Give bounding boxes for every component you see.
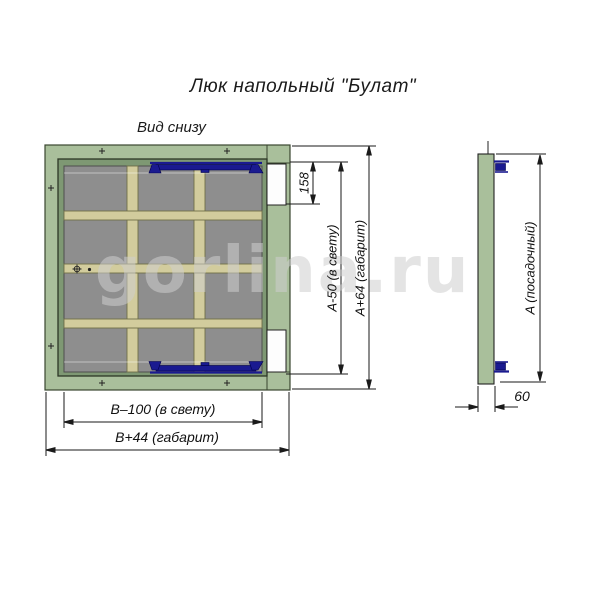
dim-label-recess-height: 158 — [298, 172, 311, 194]
dim-label-clear-height: A-50 (в свету) — [326, 224, 339, 311]
dim-label-thickness: 60 — [514, 389, 530, 403]
rib-horizontal — [64, 264, 262, 273]
dim-label-overall-height: A+64 (габарит) — [354, 220, 367, 316]
latch-recess-bottom — [267, 330, 286, 372]
rib-horizontal — [64, 211, 262, 220]
dim-label-seat-height: A (посадочный) — [524, 221, 537, 314]
side-frame-bar — [478, 154, 494, 384]
rib-horizontal — [64, 319, 262, 328]
drawing-sheet: Люк напольный "Булат" Вид снизу — [0, 0, 600, 600]
drawing-title: Люк напольный "Булат" — [190, 76, 416, 98]
view-label: Вид снизу — [137, 119, 206, 136]
side-hinge-bottom — [494, 362, 509, 372]
latch-recess-top — [267, 164, 286, 205]
side-hinge-top — [494, 162, 509, 173]
side-view — [478, 141, 509, 384]
bottom-view — [45, 145, 290, 390]
dim-label-overall-width: B+44 (габарит) — [115, 430, 219, 444]
dim-label-clear-width: B–100 (в свету) — [111, 402, 216, 416]
